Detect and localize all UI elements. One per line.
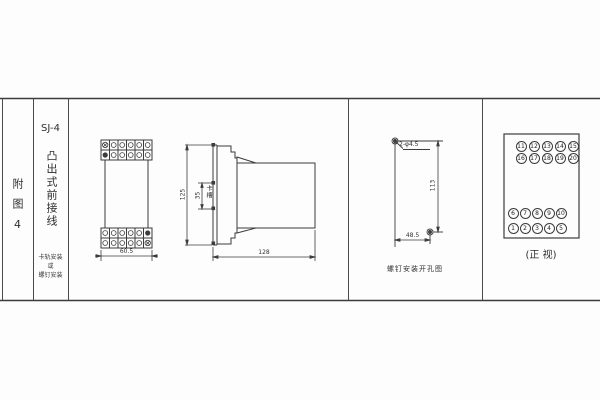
depth-dimension-label: 128 xyxy=(239,249,289,256)
terminal-circle: 5 xyxy=(556,223,567,234)
drawing-sheet: 附图4 SJ-4 凸出式前接线 卡轨安装 或 螺钉安装 60.5 125 35 … xyxy=(0,0,600,400)
side-view-dimensions xyxy=(185,145,315,261)
terminal-circle: 20 xyxy=(568,153,579,164)
terminal-circle: 17 xyxy=(529,153,540,164)
terminal-circle: 19 xyxy=(555,153,566,164)
wiring-type-label: 凸出式前接线 xyxy=(43,150,59,228)
figure-label: 附图4 xyxy=(9,178,25,240)
front-view-caption: (正 视) xyxy=(482,246,600,261)
height-dimension-label: 125 xyxy=(180,184,187,206)
terminal-circle: 18 xyxy=(542,153,553,164)
slot-name-label: 卡槽 xyxy=(204,185,213,199)
terminal-circle: 6 xyxy=(508,208,519,219)
mount-note-line1: 卡轨安装 xyxy=(33,252,68,261)
hole-size-label: 2-φ4.5 xyxy=(399,141,418,148)
terminal-circle: 15 xyxy=(568,141,579,152)
mount-note-line3: 螺钉安装 xyxy=(33,270,68,279)
terminal-circle: 12 xyxy=(529,141,540,152)
terminal-circle: 4 xyxy=(544,223,555,234)
hole-horizontal-dimension-label: 48.5 xyxy=(398,232,427,239)
terminal-circle: 10 xyxy=(556,208,567,219)
mounting-diagram-caption: 螺钉安装开孔图 xyxy=(348,264,482,274)
table-frame xyxy=(0,99,600,301)
terminal-circle: 11 xyxy=(516,141,527,152)
mount-note-line2: 或 xyxy=(33,261,68,270)
hole-vertical-dimension-label: 113 xyxy=(430,176,437,196)
width-dimension-label: 60.5 xyxy=(101,248,152,255)
terminal-circle: 3 xyxy=(532,223,543,234)
terminal-circle: 1 xyxy=(508,223,519,234)
slot-dimension-label: 35 xyxy=(195,188,202,204)
terminal-circle: 8 xyxy=(532,208,543,219)
terminal-circle: 13 xyxy=(542,141,553,152)
terminal-circle: 2 xyxy=(520,223,531,234)
terminal-circle: 9 xyxy=(544,208,555,219)
terminal-circle: 7 xyxy=(520,208,531,219)
line-art xyxy=(0,0,600,400)
outline-drawing xyxy=(101,140,152,248)
side-view xyxy=(212,143,316,245)
terminal-circle: 16 xyxy=(516,153,527,164)
model-label: SJ-4 xyxy=(33,123,68,134)
terminal-circle: 14 xyxy=(555,141,566,152)
